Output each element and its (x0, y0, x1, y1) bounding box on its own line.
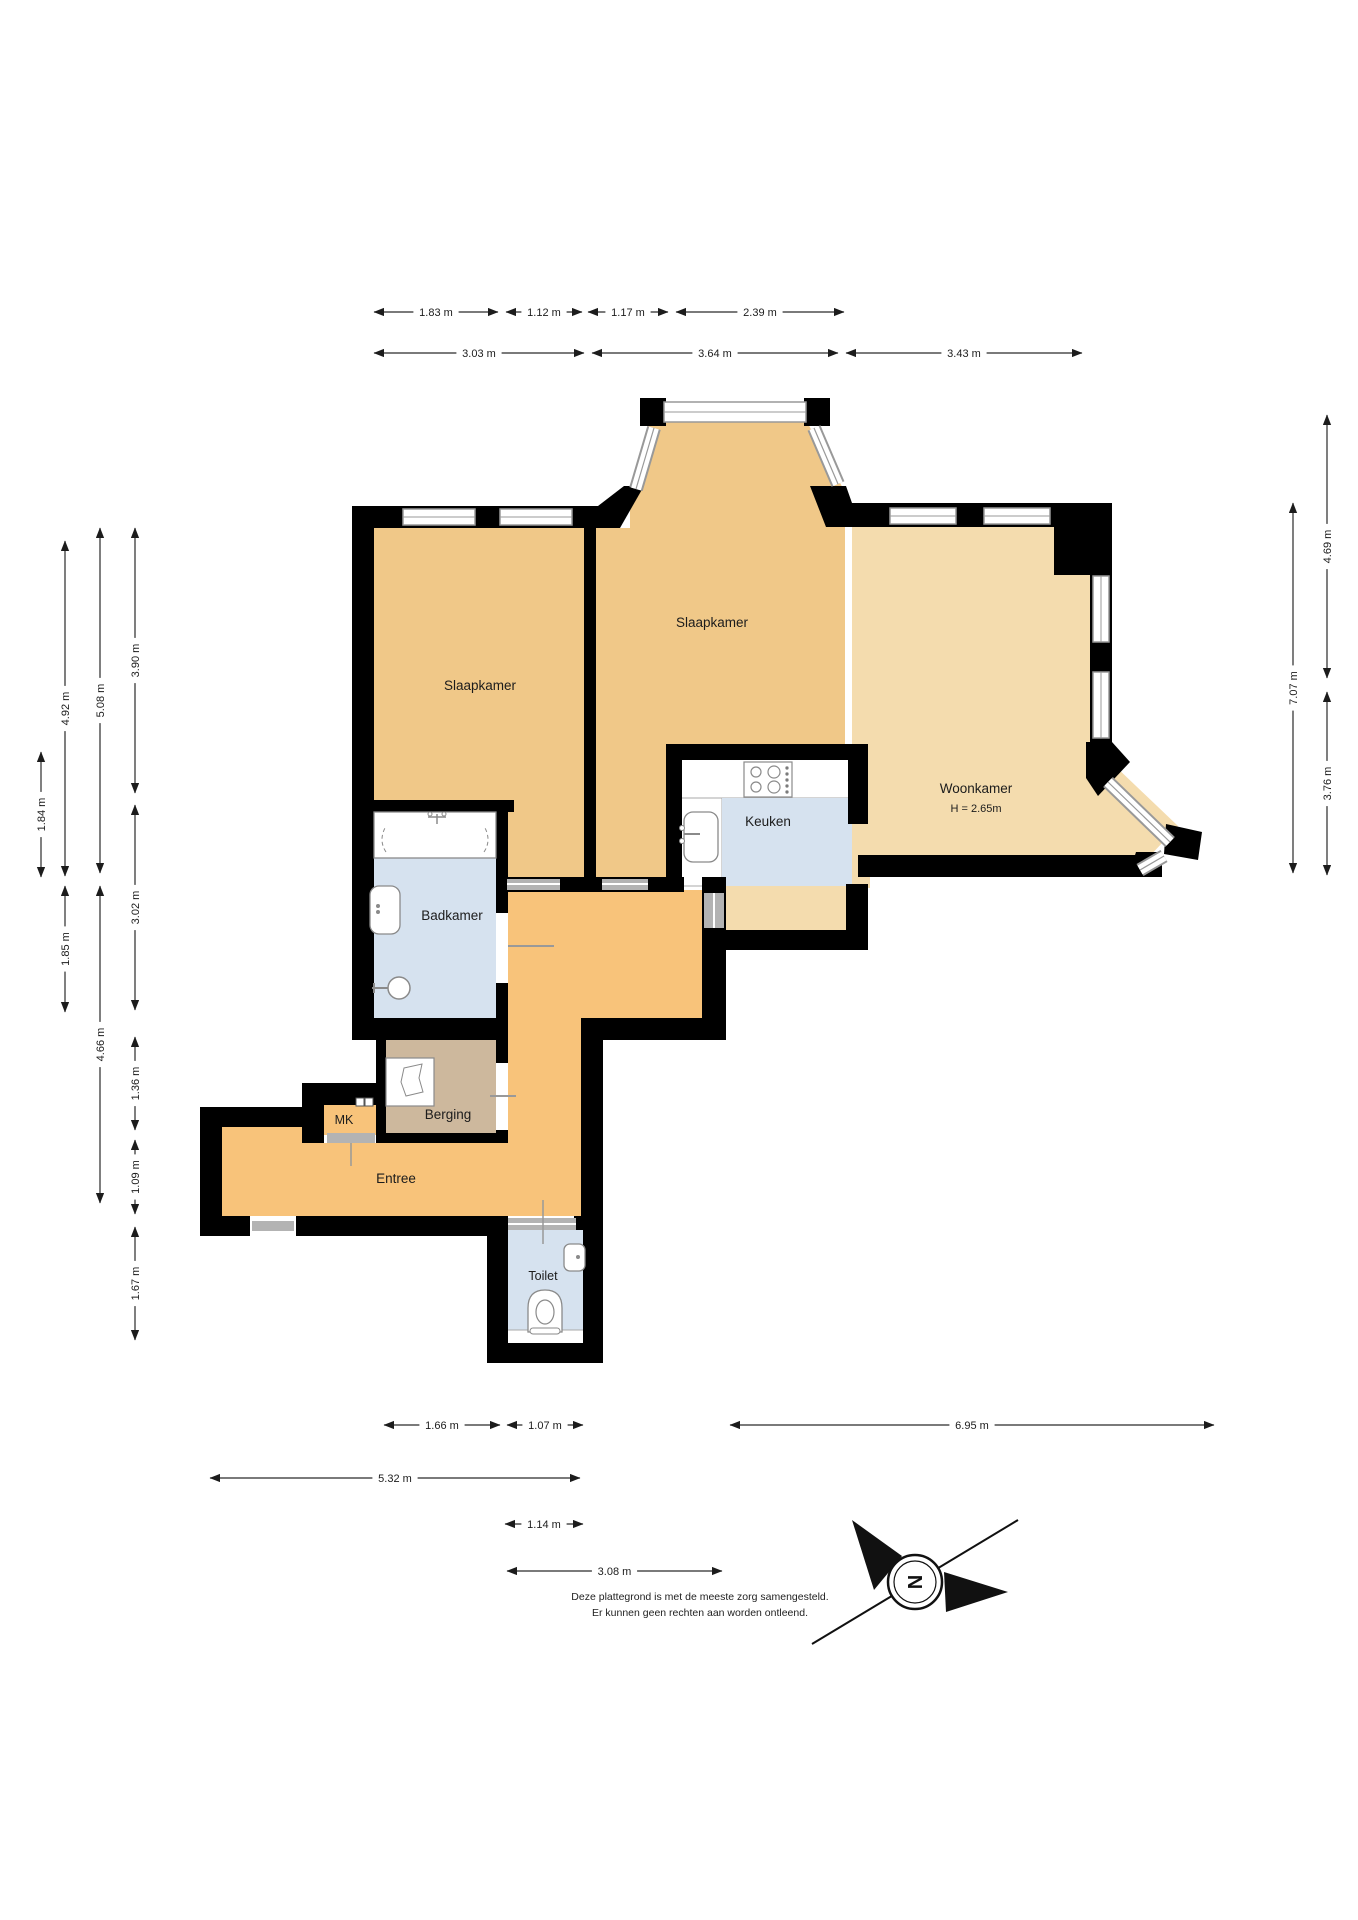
svg-text:4.69 m: 4.69 m (1322, 530, 1334, 564)
svg-text:1.12 m: 1.12 m (527, 307, 561, 319)
room-label-berging: Berging (425, 1107, 472, 1122)
dimension: 3.43 m (846, 345, 1082, 361)
toilet-bowl-icon (528, 1290, 562, 1334)
svg-text:1.84 m: 1.84 m (36, 798, 48, 832)
svg-text:3.43 m: 3.43 m (947, 348, 981, 360)
svg-text:Slaapkamer: Slaapkamer (676, 615, 749, 630)
dimension: 3.03 m (374, 345, 584, 361)
room-label-badkamer: Badkamer (421, 908, 483, 923)
dimension: 1.67 m (127, 1227, 143, 1340)
svg-text:3.90 m: 3.90 m (130, 644, 142, 678)
dimension: 3.08 m (507, 1563, 722, 1579)
room-label-toilet: Toilet (528, 1269, 558, 1283)
dimension: 1.84 m (33, 752, 49, 877)
washbasin-icon (370, 886, 400, 934)
dimension: 1.07 m (507, 1417, 583, 1433)
sink-icon (680, 812, 719, 862)
dimension: 1.17 m (588, 304, 668, 320)
meter-box-icon (356, 1098, 373, 1106)
svg-text:4.92 m: 4.92 m (60, 692, 72, 726)
dimension: 3.76 m (1319, 692, 1335, 875)
svg-text:5.32 m: 5.32 m (378, 1473, 412, 1485)
keuken-floor (722, 798, 852, 886)
svg-text:Woonkamer: Woonkamer (940, 781, 1013, 796)
disclaimer-line-1: Deze plattegrond is met de meeste zorg s… (571, 1591, 828, 1603)
bathtub-icon (374, 812, 496, 858)
dimension: 4.69 m (1319, 415, 1335, 678)
dimension: 5.08 m (92, 528, 108, 873)
svg-text:1.07 m: 1.07 m (528, 1420, 562, 1432)
svg-text:2.39 m: 2.39 m (743, 307, 777, 319)
dimension: 1.66 m (384, 1417, 500, 1433)
dimension: 1.83 m (374, 304, 498, 320)
woonkamer-step-floor (722, 884, 852, 932)
svg-text:1.85 m: 1.85 m (60, 932, 72, 966)
boiler-icon (386, 1058, 434, 1106)
disclaimer-line-2: Er kunnen geen rechten aan worden ontlee… (592, 1607, 808, 1619)
room-label-slaapkamer-2: Slaapkamer (676, 615, 749, 630)
mk-door (327, 1133, 375, 1143)
dimension: 1.85 m (57, 886, 73, 1012)
room-label-mk: MK (335, 1113, 354, 1127)
dimension: 1.14 m (505, 1516, 583, 1532)
dimension: 5.32 m (210, 1470, 580, 1486)
svg-text:Badkamer: Badkamer (421, 908, 483, 923)
disclaimer: Deze plattegrond is met de meeste zorg s… (571, 1591, 828, 1619)
toilet-basin-icon (564, 1244, 585, 1271)
svg-text:1.66 m: 1.66 m (425, 1420, 459, 1432)
dimension: 3.02 m (127, 805, 143, 1010)
dimension: 3.90 m (127, 528, 143, 793)
room-label-entree: Entree (376, 1171, 416, 1186)
room-label-slaapkamer-1: Slaapkamer (444, 678, 517, 693)
svg-text:3.03 m: 3.03 m (462, 348, 496, 360)
svg-text:6.95 m: 6.95 m (955, 1420, 989, 1432)
svg-text:1.36 m: 1.36 m (130, 1067, 142, 1101)
room-label-keuken: Keuken (745, 814, 791, 829)
svg-text:4.66 m: 4.66 m (95, 1028, 107, 1062)
compass-north-letter: N (905, 1575, 927, 1589)
svg-text:H = 2.65m: H = 2.65m (950, 803, 1001, 815)
dimension: 1.36 m (127, 1037, 143, 1130)
svg-text:1.83 m: 1.83 m (419, 307, 453, 319)
svg-text:1.09 m: 1.09 m (130, 1160, 142, 1194)
dimension: 4.66 m (92, 886, 108, 1203)
dimension: 2.39 m (676, 304, 844, 320)
badkamer-door-opening (496, 913, 508, 983)
svg-text:1.14 m: 1.14 m (527, 1519, 561, 1531)
svg-text:5.08 m: 5.08 m (95, 684, 107, 718)
dimension: 3.64 m (592, 345, 838, 361)
stove-icon (744, 762, 792, 797)
compass-icon: N (812, 1520, 1018, 1644)
floor-plan: SlaapkamerSlaapkamerWoonkamerH = 2.65mKe… (0, 0, 1358, 1920)
svg-text:3.08 m: 3.08 m (598, 1566, 632, 1578)
svg-text:Slaapkamer: Slaapkamer (444, 678, 517, 693)
svg-text:Keuken: Keuken (745, 814, 791, 829)
svg-text:7.07 m: 7.07 m (1288, 671, 1300, 705)
dimension: 1.12 m (506, 304, 582, 320)
svg-text:Entree: Entree (376, 1171, 416, 1186)
svg-text:Berging: Berging (425, 1107, 472, 1122)
svg-text:1.17 m: 1.17 m (611, 307, 645, 319)
svg-text:1.67 m: 1.67 m (130, 1267, 142, 1301)
floor-plan-page: SlaapkamerSlaapkamerWoonkamerH = 2.65mKe… (0, 0, 1358, 1920)
svg-text:3.02 m: 3.02 m (130, 891, 142, 925)
dimension: 6.95 m (730, 1417, 1214, 1433)
dimension: 7.07 m (1285, 503, 1301, 873)
svg-text:3.76 m: 3.76 m (1322, 767, 1334, 801)
svg-text:Toilet: Toilet (528, 1269, 558, 1283)
svg-text:MK: MK (335, 1113, 354, 1127)
dimension: 4.92 m (57, 541, 73, 876)
dimension: 1.09 m (127, 1140, 143, 1214)
svg-text:3.64 m: 3.64 m (698, 348, 732, 360)
